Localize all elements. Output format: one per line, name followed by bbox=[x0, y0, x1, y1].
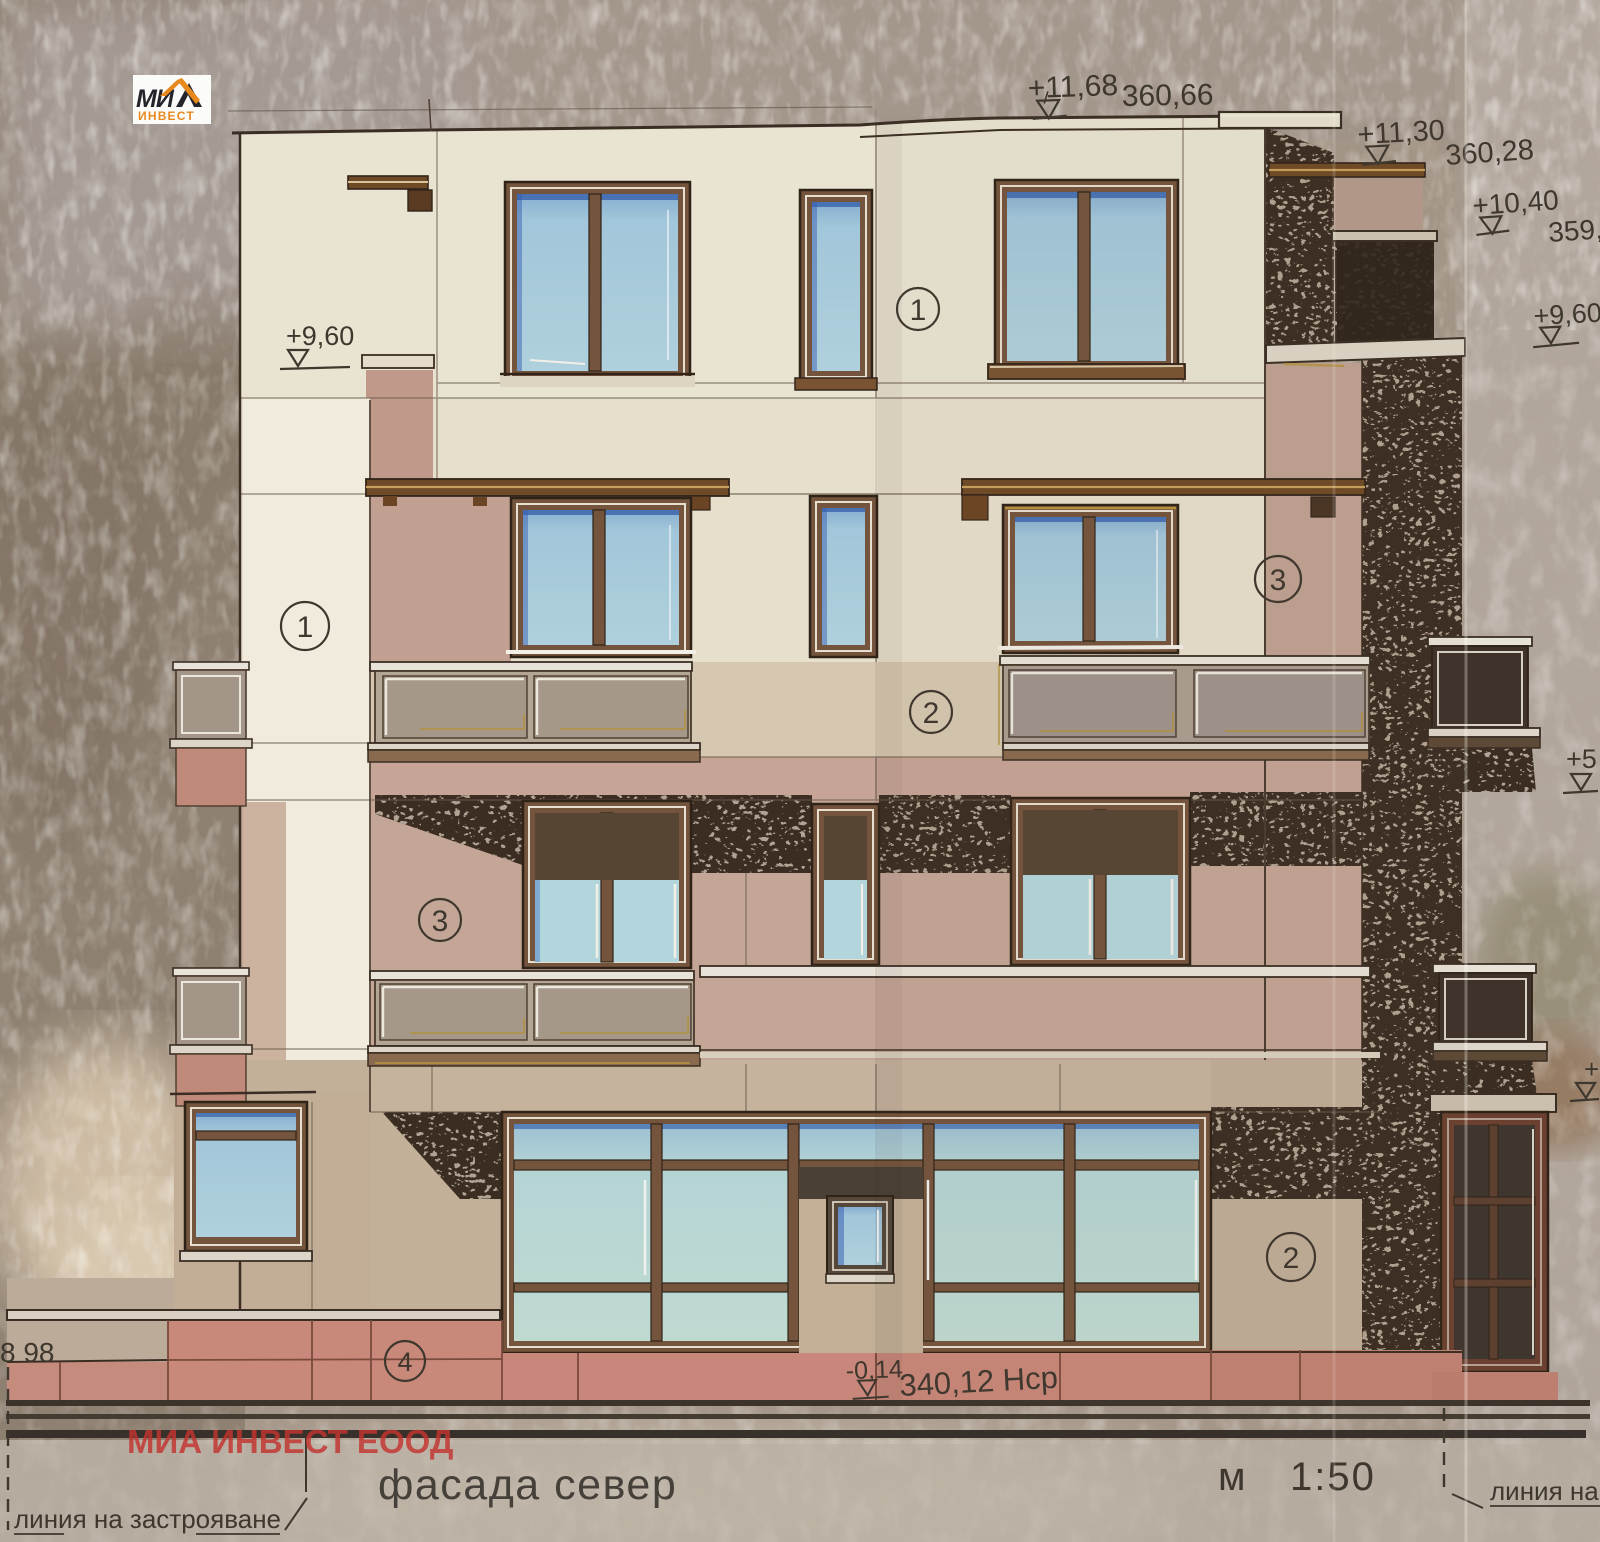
svg-text:+10,40: +10,40 bbox=[1471, 184, 1559, 221]
svg-text:+: + bbox=[1584, 1054, 1599, 1084]
svg-text:+5: +5 bbox=[1566, 744, 1597, 774]
svg-text:359,3: 359,3 bbox=[1547, 212, 1600, 248]
svg-text:+9,60: +9,60 bbox=[286, 321, 354, 351]
svg-text:3: 3 bbox=[432, 905, 449, 938]
svg-text:8 98: 8 98 bbox=[0, 1337, 55, 1368]
svg-text:360,66: 360,66 bbox=[1122, 78, 1214, 113]
svg-text:МИА ИНВЕСТ ЕООД: МИА ИНВЕСТ ЕООД bbox=[127, 1423, 453, 1460]
svg-text:+9,60: +9,60 bbox=[1533, 298, 1600, 332]
svg-text:м: м bbox=[1218, 1455, 1246, 1499]
svg-text:фасада север: фасада север bbox=[378, 1461, 677, 1509]
svg-text:линия на застрояване: линия на застрояване bbox=[14, 1504, 281, 1534]
svg-text:1: 1 bbox=[297, 611, 314, 644]
svg-text:линия на: линия на bbox=[1490, 1476, 1599, 1506]
svg-text:ИНВЕСТ: ИНВЕСТ bbox=[138, 109, 195, 123]
svg-text:4: 4 bbox=[397, 1347, 412, 1377]
